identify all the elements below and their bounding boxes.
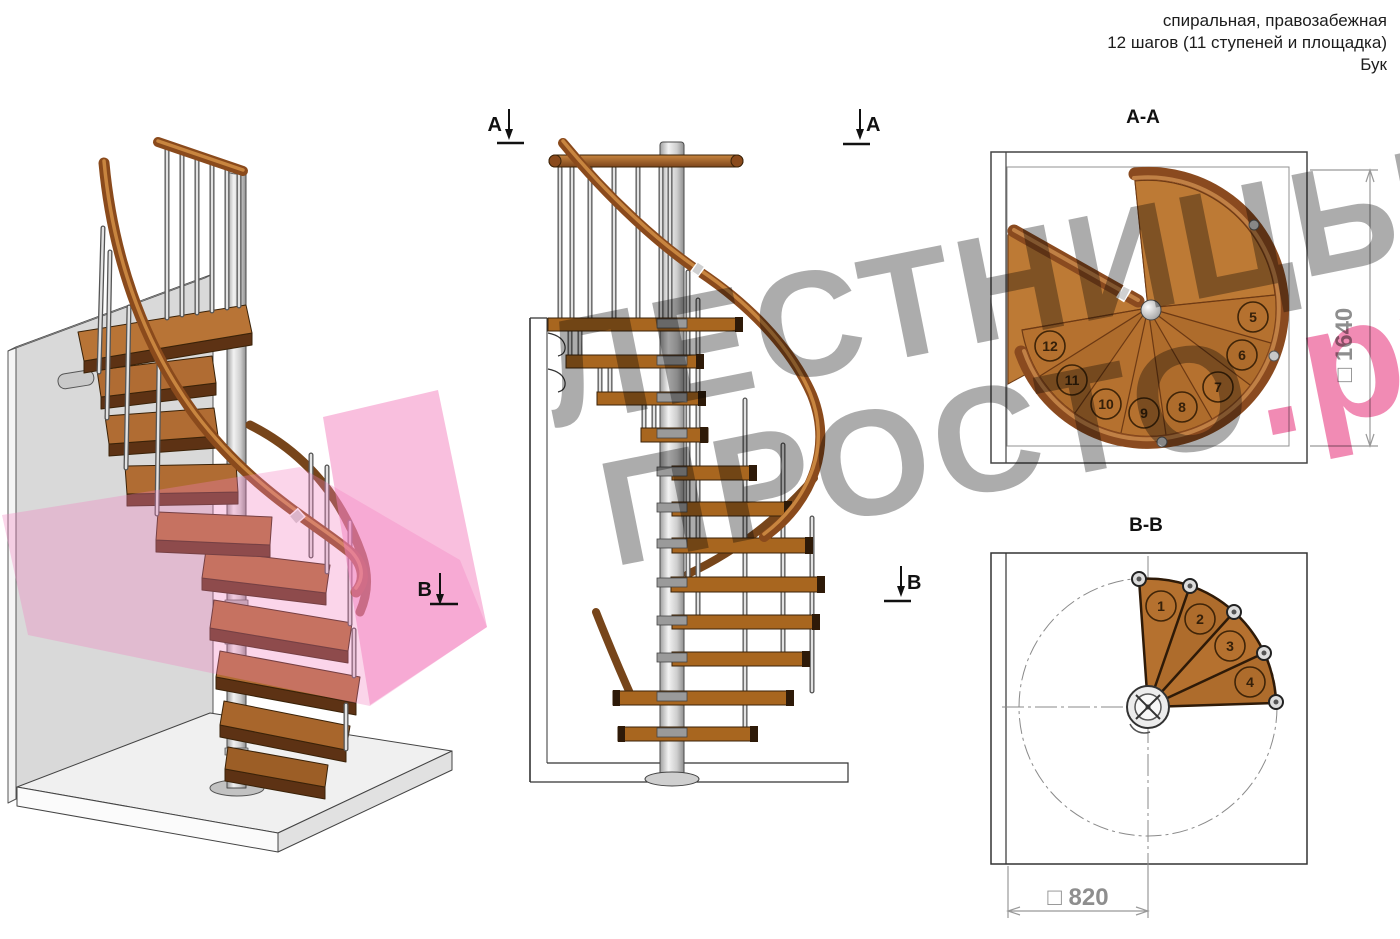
title-line-steps: 12 шагов (11 ступеней и площадка)	[1107, 32, 1387, 54]
iso-marker-b-letter: В	[418, 579, 432, 601]
plan-aa-title: А-А	[1126, 107, 1160, 128]
elevation-balusters	[560, 168, 812, 727]
step-number: 4	[1246, 674, 1254, 690]
plan-aa-dimension-label: □ 1640	[1331, 308, 1358, 383]
step-number: 11	[1065, 372, 1080, 388]
iso-top-rail	[158, 141, 243, 171]
section-marker-a-left: А	[488, 109, 524, 143]
step-number: 8	[1178, 399, 1186, 415]
section-marker-b-right: В	[884, 566, 921, 601]
section-marker-a-right: А	[843, 109, 880, 144]
marker-a-left-letter: А	[488, 114, 502, 136]
iso-3d-view: В	[2, 141, 487, 852]
marker-a-right-letter: А	[866, 114, 880, 136]
marker-b-right-letter: В	[907, 572, 921, 594]
step-number: 1	[1157, 598, 1165, 614]
plan-aa-pole-top	[1141, 300, 1161, 320]
elevation-back-rail-2	[596, 612, 633, 700]
step-number: 2	[1196, 611, 1204, 627]
plan-bb-center-hub	[1127, 686, 1169, 733]
step-number: 9	[1140, 405, 1148, 421]
plan-bb-dimension-label: □ 820	[1047, 884, 1108, 911]
step-number: 12	[1042, 338, 1058, 354]
plan-view-bb: В-В	[991, 515, 1307, 918]
title-line-type: спиральная, правозабежная	[1107, 10, 1387, 32]
elevation-back-rail	[688, 478, 814, 574]
step-number: 3	[1226, 638, 1234, 654]
step-number: 6	[1238, 347, 1246, 363]
title-line-material: Бук	[1107, 54, 1387, 76]
step-number: 5	[1249, 309, 1257, 325]
title-block: спиральная, правозабежная 12 шагов (11 с…	[1107, 10, 1387, 76]
step-number: 10	[1098, 396, 1114, 412]
elevation-view: А А В	[488, 109, 922, 786]
step-number: 7	[1214, 379, 1222, 395]
plan-bb-title: В-В	[1129, 515, 1163, 536]
drawing-sheet: В	[0, 0, 1400, 939]
staircase-technical-drawing: В	[0, 0, 1400, 939]
plan-view-aa: А-А	[991, 107, 1378, 463]
